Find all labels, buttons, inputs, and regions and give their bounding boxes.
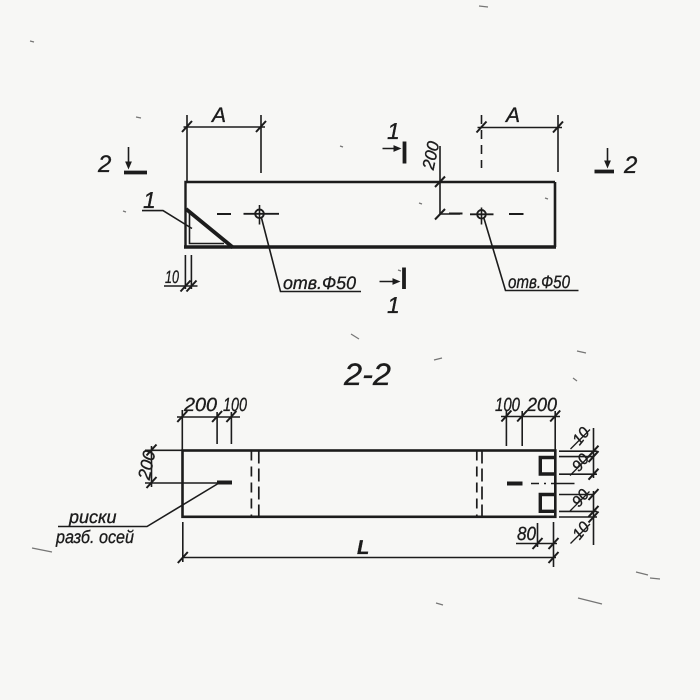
svg-text:2-2: 2-2 [343,357,391,392]
svg-text:2: 2 [623,152,637,179]
svg-text:А: А [210,104,226,127]
svg-text:200: 200 [183,395,217,416]
svg-text:разб. осей: разб. осей [55,527,134,547]
svg-text:отв.Ф50: отв.Ф50 [283,273,356,293]
svg-text:1: 1 [387,118,400,144]
svg-text:100: 100 [495,395,520,416]
svg-text:1: 1 [143,187,156,213]
svg-text:80: 80 [517,524,536,545]
svg-text:риски: риски [68,507,117,527]
svg-text:2: 2 [97,151,111,178]
svg-text:1: 1 [387,292,400,318]
svg-text:10: 10 [165,267,179,287]
svg-text:А: А [504,104,520,127]
svg-text:200: 200 [526,395,557,416]
svg-text:отв.Ф50: отв.Ф50 [508,272,570,292]
svg-text:L: L [357,537,369,559]
